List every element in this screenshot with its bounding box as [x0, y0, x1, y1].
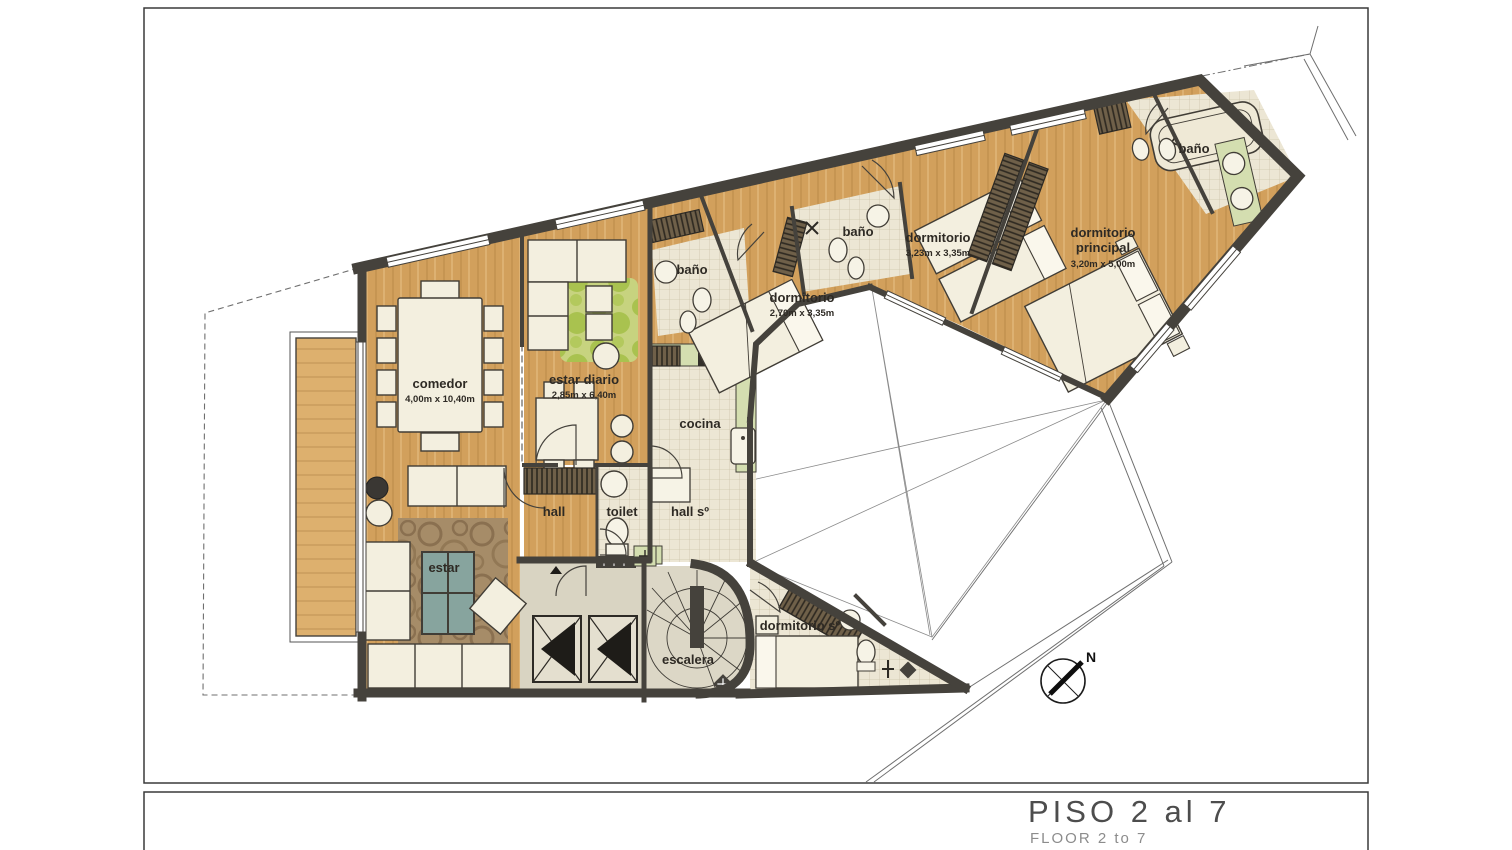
compass-needle	[1050, 662, 1082, 694]
label-dormitorio-principal-2: principal	[1076, 240, 1130, 255]
label-estar: estar	[428, 560, 459, 575]
plan-title: PISO 2 al 7	[1028, 794, 1231, 829]
label-bano-1: baño	[676, 262, 707, 277]
compass-rose: N	[1041, 649, 1096, 703]
compass-north-label: N	[1086, 649, 1096, 665]
label-dormitorio-2: dormitorio	[906, 230, 971, 245]
floor-plan-drawing: comedor 4,00m x 10,40m estar diario 2,85…	[0, 0, 1512, 850]
label-dormitorio-servicio: dormitorio sº	[760, 618, 841, 633]
wc-icon	[857, 640, 875, 664]
label-cocina: cocina	[679, 416, 721, 431]
label-hall: hall	[543, 504, 565, 519]
label-dormitorio-principal-1: dormitorio	[1071, 225, 1136, 240]
side-table-dark	[366, 477, 388, 499]
dims-estar-diario: 2,85m x 6,40m	[552, 390, 616, 401]
bidet-icon	[680, 311, 696, 333]
dims-dormitorio-principal: 3,20m x 5,00m	[1071, 259, 1135, 270]
balcony	[290, 332, 362, 642]
label-estar-diario: estar diario	[549, 372, 619, 387]
title-block: PISO 2 al 7 FLOOR 2 to 7	[1028, 794, 1231, 847]
plan-subtitle: FLOOR 2 to 7	[1030, 830, 1147, 847]
sink-icon	[601, 471, 627, 497]
label-escalera: escalera	[662, 652, 715, 667]
fridge-icon	[652, 468, 690, 502]
side-table-round	[366, 500, 392, 526]
label-bano-principal: baño	[1178, 141, 1209, 156]
wc-icon	[829, 238, 847, 262]
label-bano-2: baño	[842, 224, 873, 239]
sink-icon	[655, 261, 677, 283]
dims-dormitorio-2: 3,23m x 3,35m	[906, 248, 970, 259]
dims-comedor: 4,00m x 10,40m	[405, 394, 475, 405]
dims-dormitorio-1: 2,70m x 3,35m	[770, 308, 834, 319]
floor-plan-page: comedor 4,00m x 10,40m estar diario 2,85…	[0, 0, 1512, 850]
label-toilet: toilet	[606, 504, 638, 519]
label-dormitorio-1: dormitorio	[770, 290, 835, 305]
bidet-icon	[848, 257, 864, 279]
wc-icon	[693, 288, 711, 312]
label-hall-servicio: hall sº	[671, 504, 709, 519]
wc-icon	[606, 518, 628, 546]
label-comedor: comedor	[413, 376, 468, 391]
